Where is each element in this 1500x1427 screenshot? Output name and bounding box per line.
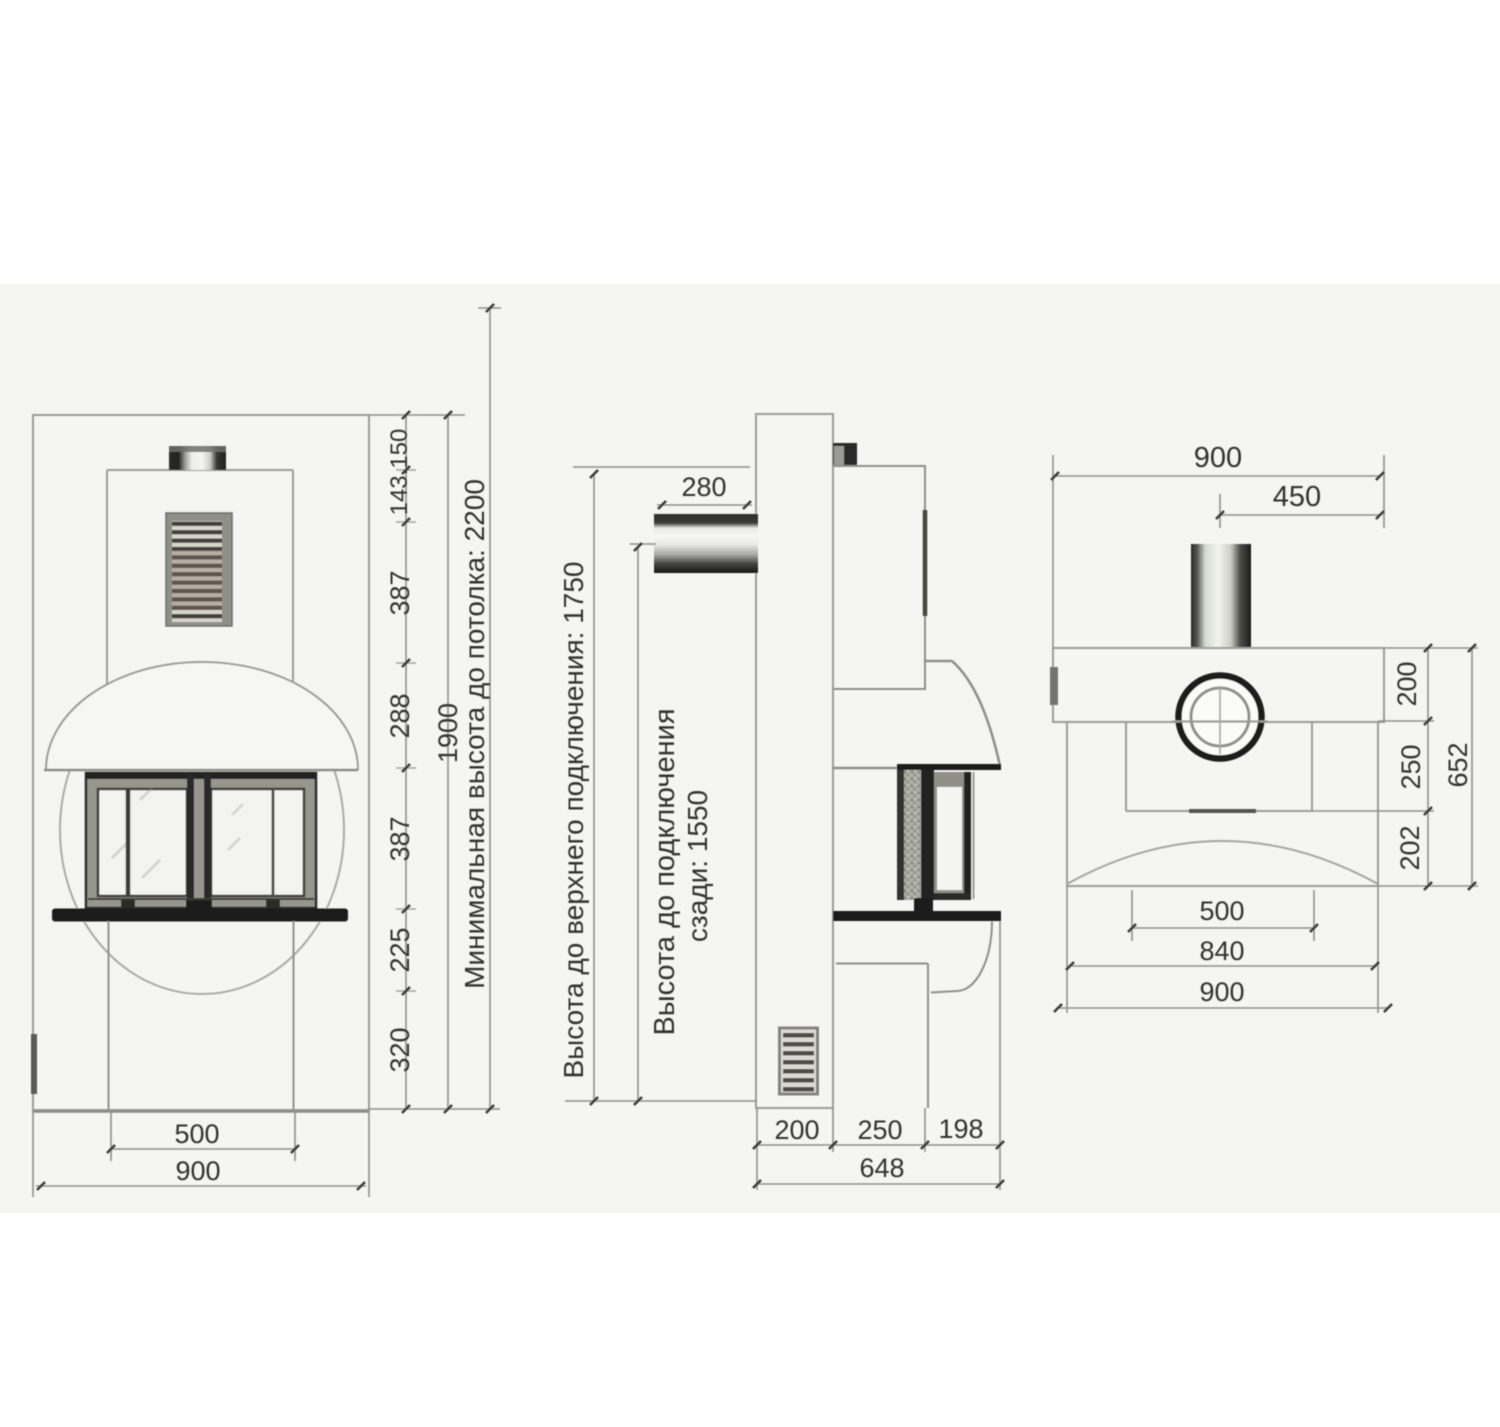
svg-text:280: 280: [681, 472, 726, 502]
svg-text:сзади: 1550: сзади: 1550: [682, 790, 713, 942]
svg-text:225: 225: [385, 927, 415, 972]
svg-text:652: 652: [1443, 742, 1473, 787]
svg-text:Высота до верхнего подключения: Высота до верхнего подключения: 1750: [558, 561, 589, 1078]
svg-text:500: 500: [174, 1119, 219, 1149]
svg-text:200: 200: [1392, 661, 1422, 706]
svg-text:387: 387: [385, 570, 415, 615]
svg-text:900: 900: [175, 1156, 220, 1186]
svg-text:648: 648: [859, 1153, 904, 1183]
svg-text:250: 250: [857, 1115, 902, 1145]
svg-text:387: 387: [385, 816, 415, 861]
svg-text:Минимальная высота до потолка:: Минимальная высота до потолка: 2200: [459, 479, 490, 989]
svg-text:320: 320: [385, 1027, 415, 1072]
svg-text:Высота до подключения: Высота до подключения: [649, 708, 681, 1035]
svg-text:840: 840: [1199, 936, 1244, 966]
svg-text:900: 900: [1194, 442, 1242, 474]
svg-text:250: 250: [1396, 744, 1426, 789]
svg-text:500: 500: [1199, 896, 1244, 926]
svg-text:143.150: 143.150: [386, 429, 413, 516]
svg-text:202: 202: [1395, 825, 1425, 870]
svg-text:450: 450: [1273, 481, 1321, 513]
svg-text:288: 288: [385, 693, 415, 738]
svg-text:200: 200: [774, 1115, 819, 1145]
svg-text:198: 198: [938, 1114, 983, 1144]
svg-text:900: 900: [1199, 977, 1244, 1007]
